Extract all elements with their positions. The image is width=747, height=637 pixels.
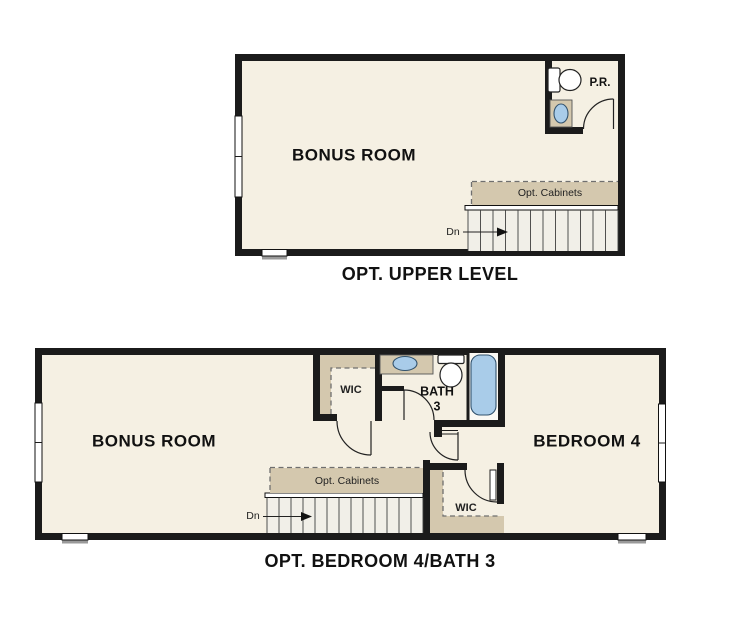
wic-label: WIC bbox=[455, 502, 476, 514]
sink-vanity bbox=[550, 100, 572, 127]
powder-room-label: P.R. bbox=[590, 77, 611, 89]
window bbox=[235, 116, 242, 197]
plan-title: OPT. BEDROOM 4/BATH 3 bbox=[180, 551, 580, 572]
opt-cabinets: Opt. Cabinets bbox=[472, 182, 619, 206]
cabinets-label: Opt. Cabinets bbox=[315, 475, 379, 487]
sink-icon bbox=[393, 357, 417, 371]
lower-floor-plan: WIC bbox=[25, 335, 675, 550]
window bbox=[35, 403, 42, 482]
bonus-room-label: BONUS ROOM bbox=[92, 431, 216, 450]
toilet-icon bbox=[548, 68, 581, 92]
bath-label: 3 bbox=[434, 399, 441, 413]
plan-title: OPT. UPPER LEVEL bbox=[230, 264, 630, 285]
upper-floor-plan: Opt. Cabinets Dn bbox=[225, 40, 645, 270]
stairs bbox=[265, 493, 423, 533]
cabinets-label: Opt. Cabinets bbox=[518, 187, 582, 199]
stairs-down-label: Dn bbox=[446, 226, 460, 238]
stairs bbox=[465, 206, 618, 252]
bonus-room-label: BONUS ROOM bbox=[292, 145, 416, 164]
sink-icon bbox=[554, 104, 568, 123]
bath-label: BATH bbox=[420, 384, 454, 398]
window bbox=[659, 404, 666, 482]
window bbox=[618, 534, 646, 544]
stairs-down-label: Dn bbox=[246, 510, 260, 522]
opt-cabinets: Opt. Cabinets bbox=[270, 468, 423, 494]
wic-label: WIC bbox=[340, 384, 361, 396]
toilet-icon bbox=[438, 355, 464, 387]
floor-plan-page: Opt. Cabinets Dn bbox=[0, 0, 747, 637]
window bbox=[262, 250, 287, 260]
window bbox=[62, 534, 88, 544]
bedroom-label: BEDROOM 4 bbox=[533, 431, 641, 450]
sink-vanity bbox=[380, 355, 433, 374]
bathtub-icon bbox=[468, 353, 500, 420]
